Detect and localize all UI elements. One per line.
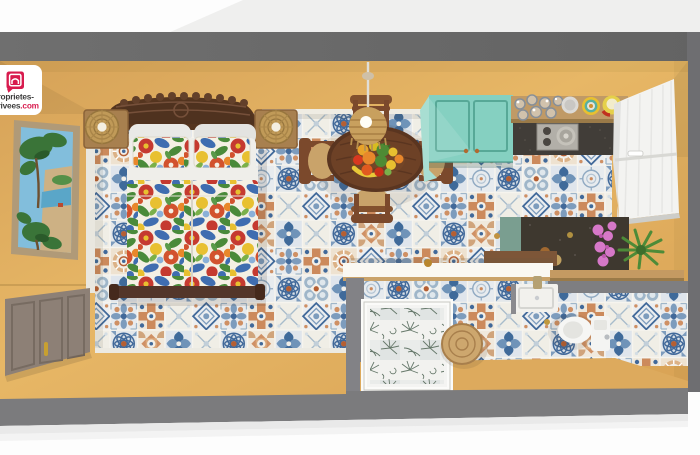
svg-text:rivees.com: rivees.com xyxy=(0,101,39,111)
